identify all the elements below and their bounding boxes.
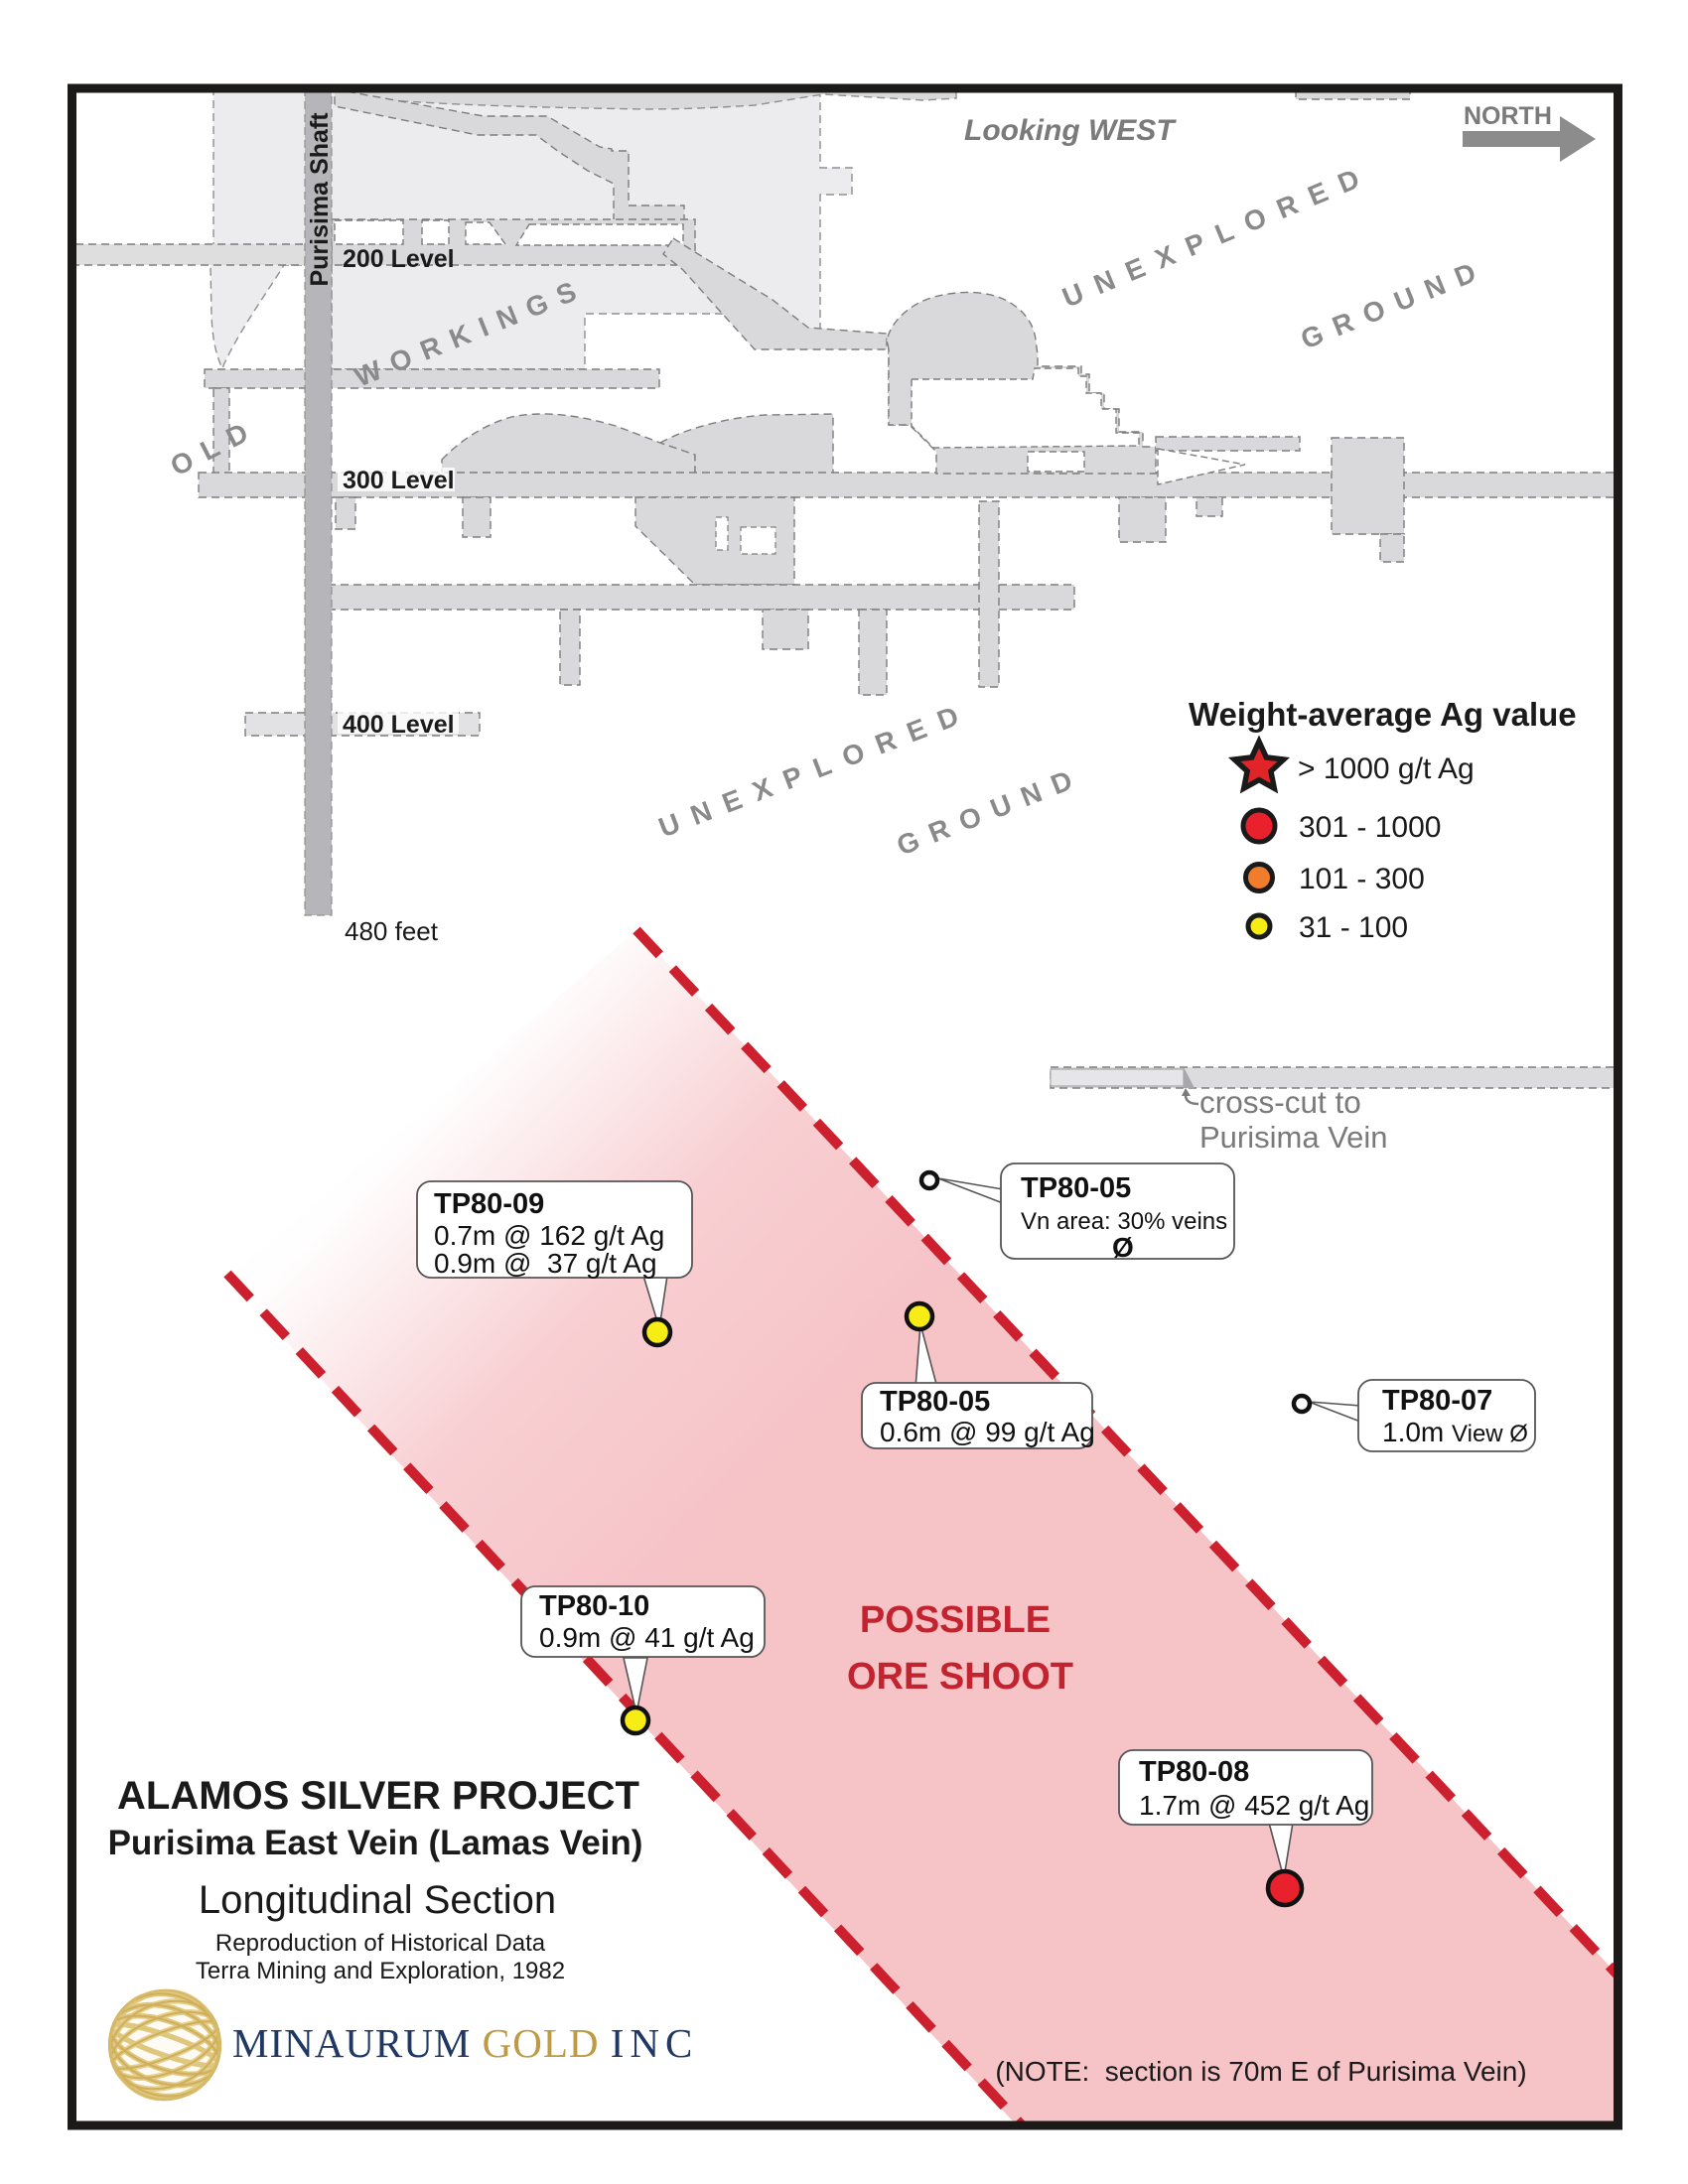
svg-text:0.9m @ 41 g/t Ag: 0.9m @ 41 g/t Ag <box>539 1622 755 1653</box>
svg-text:NORTH: NORTH <box>1464 102 1552 130</box>
svg-text:0.6m @ 99 g/t Ag: 0.6m @ 99 g/t Ag <box>880 1417 1095 1447</box>
svg-text:480 feet: 480 feet <box>345 916 439 946</box>
svg-text:0.9m @ 37 g/t Ag: 0.9m @ 37 g/t Ag <box>434 1248 657 1279</box>
svg-text:Purisima Vein: Purisima Vein <box>1199 1120 1388 1155</box>
svg-text:31 - 100: 31 - 100 <box>1299 911 1408 944</box>
svg-text:Looking WEST: Looking WEST <box>964 114 1177 147</box>
svg-text:1.7m @ 452 g/t Ag: 1.7m @ 452 g/t Ag <box>1139 1790 1369 1821</box>
svg-text:Longitudinal Section: Longitudinal Section <box>199 1878 556 1922</box>
svg-text:0.7m @ 162 g/t Ag: 0.7m @ 162 g/t Ag <box>434 1220 664 1251</box>
svg-text:> 1000 g/t Ag: > 1000 g/t Ag <box>1298 752 1475 785</box>
svg-text:TP80-07: TP80-07 <box>1382 1385 1492 1417</box>
svg-text:301 - 1000: 301 - 1000 <box>1299 811 1441 844</box>
svg-text:Vn area: 30% veins: Vn area: 30% veins <box>1021 1208 1227 1235</box>
svg-text:TP80-08: TP80-08 <box>1139 1756 1249 1788</box>
svg-text:MINAURUM GOLD INC: MINAURUM GOLD INC <box>232 2020 698 2066</box>
svg-text:TP80-09: TP80-09 <box>434 1188 544 1220</box>
svg-text:200 Level: 200 Level <box>343 245 455 273</box>
svg-text:ORE SHOOT: ORE SHOOT <box>847 1656 1073 1698</box>
svg-text:Ø: Ø <box>1112 1232 1134 1263</box>
svg-text:TP80-10: TP80-10 <box>539 1590 649 1622</box>
svg-text:Purisima Shaft: Purisima Shaft <box>306 112 334 287</box>
svg-text:TP80-05: TP80-05 <box>880 1386 990 1418</box>
svg-text:101 - 300: 101 - 300 <box>1299 863 1425 895</box>
svg-text:400 Level: 400 Level <box>343 711 455 739</box>
svg-text:Weight-average Ag value: Weight-average Ag value <box>1189 696 1577 733</box>
svg-text:1.0m View Ø: 1.0m View Ø <box>1382 1417 1528 1447</box>
svg-text:ALAMOS SILVER PROJECT: ALAMOS SILVER PROJECT <box>117 1774 639 1818</box>
svg-text:Purisima East Vein (Lamas Vein: Purisima East Vein (Lamas Vein) <box>108 1824 643 1862</box>
svg-text:(NOTE: section is 70m E of Pu: (NOTE: section is 70m E of Purisima Vein… <box>995 2056 1526 2087</box>
svg-text:TP80-05: TP80-05 <box>1021 1172 1131 1204</box>
svg-text:cross-cut to: cross-cut to <box>1199 1084 1361 1120</box>
svg-text:POSSIBLE: POSSIBLE <box>860 1599 1051 1641</box>
svg-text:300 Level: 300 Level <box>343 467 455 494</box>
svg-text:Reproduction of Historical Dat: Reproduction of Historical Data <box>215 1930 546 1957</box>
svg-text:Terra Mining and Exploration,: Terra Mining and Exploration, 1982 <box>196 1958 565 1984</box>
